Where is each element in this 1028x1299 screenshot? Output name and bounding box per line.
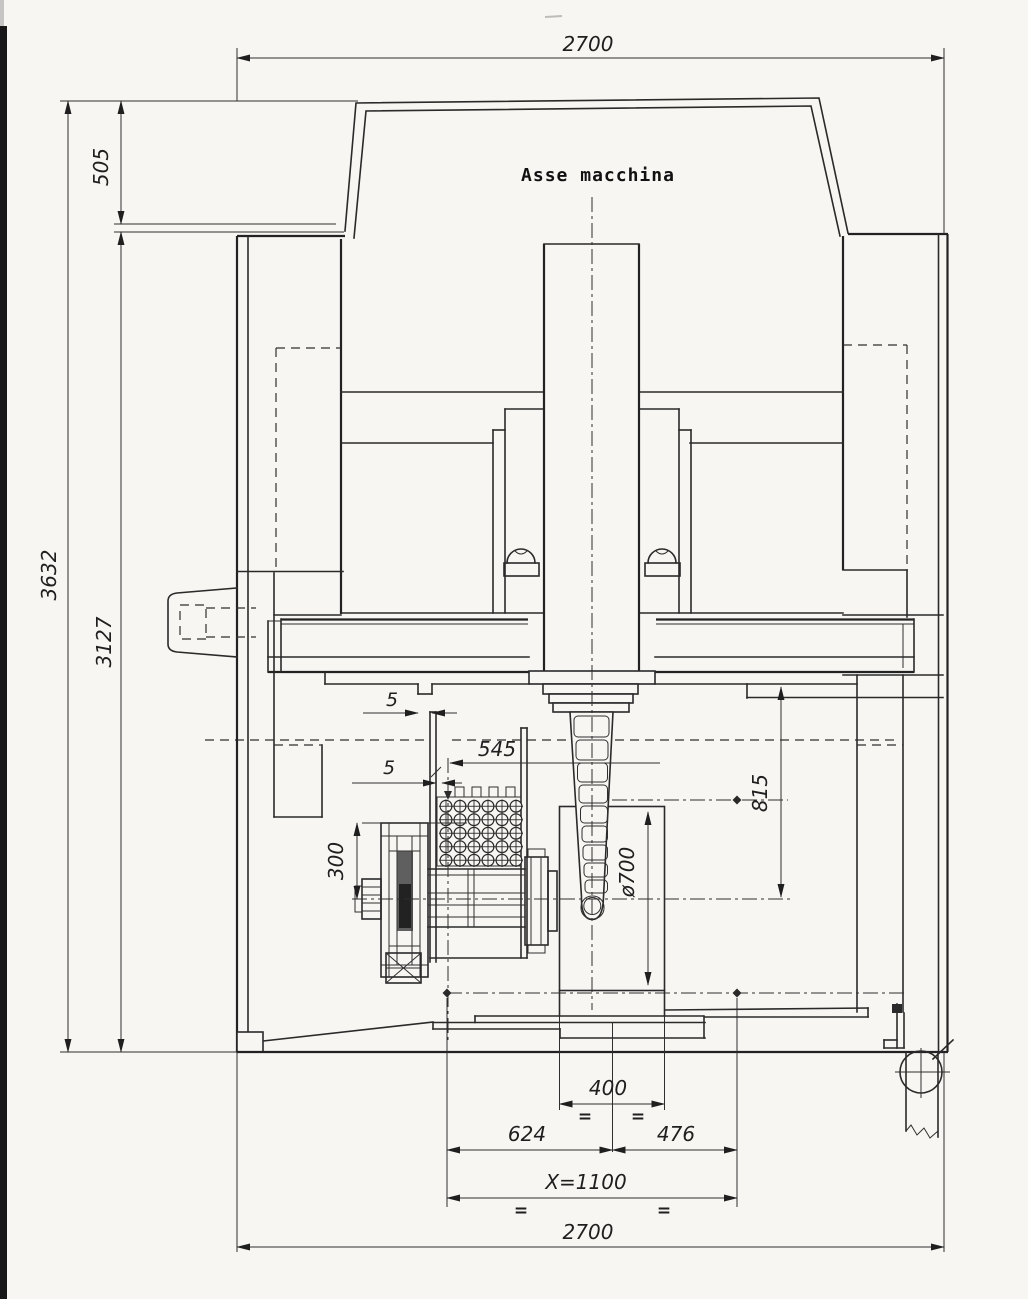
dimension-gap-5-lower: 5 (352, 757, 462, 783)
break-line (906, 1125, 938, 1138)
dimension-400: 400 = = (560, 1016, 665, 1152)
dimension-815: 815 (748, 687, 781, 897)
eq-mark-2: = (631, 1107, 645, 1127)
dim-label-400: 400 (589, 1076, 627, 1100)
eq-mark-1: = (578, 1107, 592, 1127)
dim-label-3127: 3127 (92, 616, 116, 667)
dim-label-624: 624 (508, 1122, 546, 1146)
cross-rail (268, 619, 914, 672)
dimension-x1100: X=1100 = = (447, 1170, 737, 1221)
dim-label-815: 815 (748, 774, 772, 812)
eq-mark-3: = (514, 1201, 528, 1221)
technical-drawing-page: 2700 3632 505 3127 5 5 545 300 ø700 (0, 0, 1028, 1299)
dim-label-x1100: X=1100 (544, 1170, 626, 1194)
machine-body (237, 236, 943, 617)
dimension-overall-width-top: 2700 (237, 32, 944, 234)
workpiece-envelope (560, 807, 665, 1017)
pendant-bracket (168, 588, 256, 657)
machine-axis-label: Asse macchina (521, 165, 675, 186)
dimension-545: 545 (450, 737, 660, 763)
clamping-hole-grid (439, 800, 523, 868)
dim-label-505: 505 (89, 148, 113, 186)
dim-label-476: 476 (657, 1122, 695, 1146)
dim-label-2700-bottom: 2700 (563, 1220, 614, 1244)
dim-label-2700-top: 2700 (563, 32, 614, 56)
machine-front-view-drawing: 2700 3632 505 3127 5 5 545 300 ø700 (0, 0, 1028, 1299)
dim-label-3632: 3632 (37, 550, 61, 601)
dim-label-5b: 5 (383, 757, 395, 779)
eq-mark-4: = (657, 1201, 671, 1221)
dim-label-dia700: ø700 (615, 847, 639, 898)
dim-label-5a: 5 (386, 689, 398, 711)
dimension-left-heights: 3632 505 3127 (37, 101, 358, 1052)
dimension-gap-5-upper: 5 (363, 689, 457, 713)
dim-label-300: 300 (324, 842, 348, 880)
dim-label-545: 545 (478, 737, 516, 761)
machine-base (237, 1004, 948, 1052)
